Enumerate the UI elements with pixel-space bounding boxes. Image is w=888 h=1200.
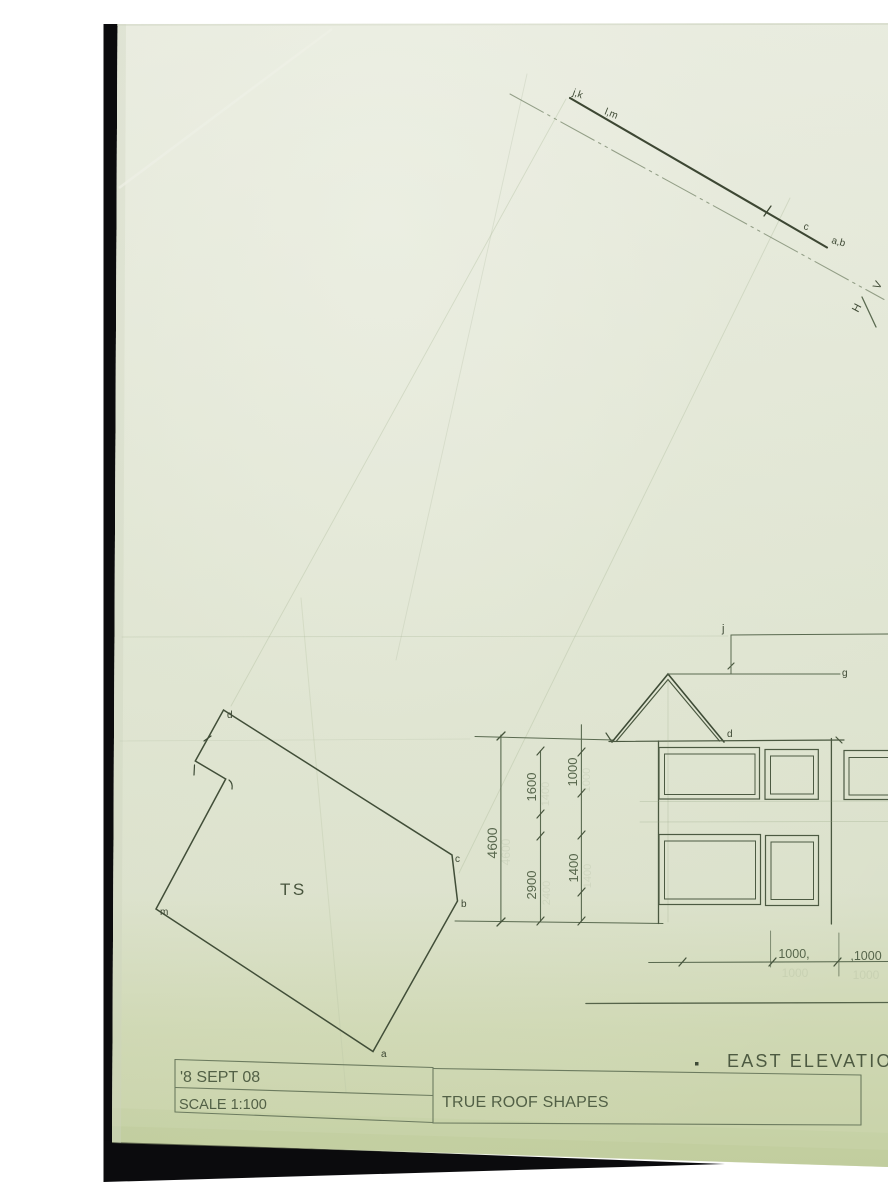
svg-text:d: d [727, 729, 733, 740]
svg-text:1400: 1400 [566, 854, 581, 883]
svg-text:2400: 2400 [541, 881, 553, 905]
svg-text:1000: 1000 [565, 758, 580, 787]
svg-text:1600: 1600 [524, 773, 539, 802]
svg-text:g: g [842, 668, 848, 679]
svg-text:1400: 1400 [582, 864, 594, 888]
svg-text:1400: 1400 [540, 782, 552, 806]
svg-text:1000: 1000 [782, 966, 809, 980]
svg-text:c: c [455, 854, 460, 865]
svg-text:4600: 4600 [484, 827, 500, 858]
svg-text:1000: 1000 [581, 768, 593, 792]
svg-text:TRUE ROOF SHAPES: TRUE ROOF SHAPES [442, 1094, 609, 1111]
svg-text:j: j [721, 623, 724, 635]
svg-text:EAST ELEVATION: EAST ELEVATION [727, 1051, 888, 1071]
svg-text:'8 SEPT 08: '8 SEPT 08 [180, 1069, 260, 1086]
svg-text:1000: 1000 [853, 968, 880, 982]
svg-text:,1000: ,1000 [850, 949, 881, 963]
svg-text:d: d [227, 710, 233, 721]
svg-text:SCALE 1:100: SCALE 1:100 [179, 1097, 267, 1113]
svg-text:m: m [160, 907, 168, 918]
svg-text:TS: TS [280, 880, 307, 899]
svg-text:a: a [381, 1049, 387, 1060]
svg-text:4600: 4600 [499, 838, 513, 865]
svg-text:1000,: 1000, [778, 947, 809, 961]
svg-text:b: b [461, 899, 467, 910]
svg-text:2900: 2900 [524, 871, 539, 900]
